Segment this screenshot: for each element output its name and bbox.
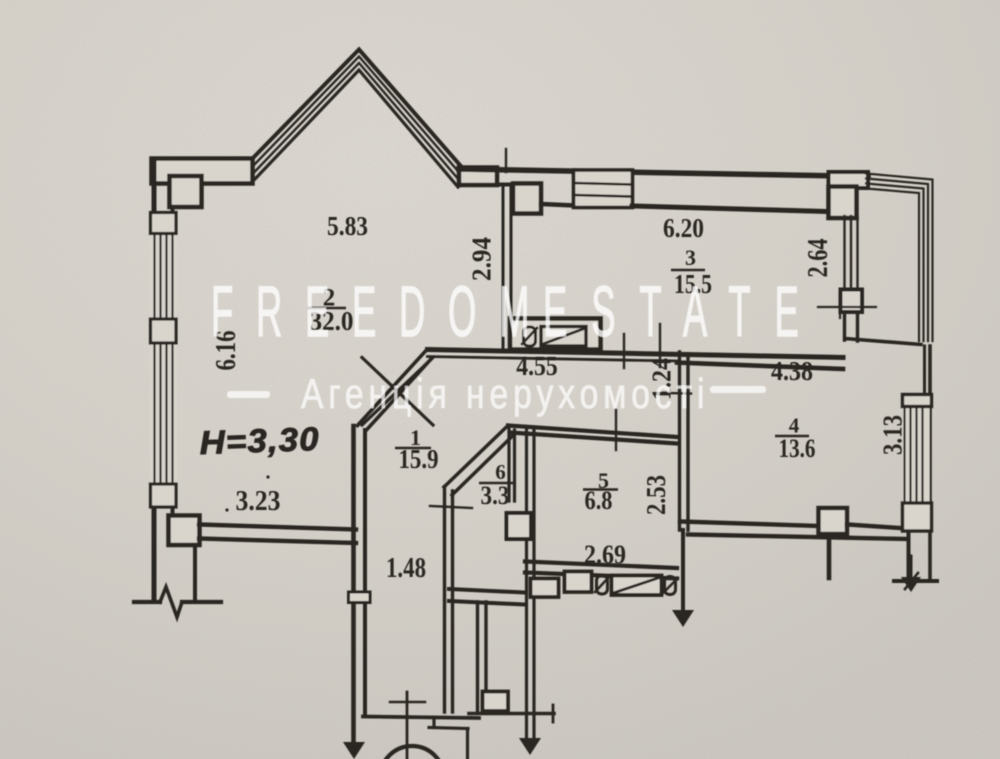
svg-text:ESTATE: ESTATE — [543, 272, 823, 351]
svg-text:2.69: 2.69 — [584, 540, 626, 570]
svg-text:Агенція нерухомості: Агенція нерухомості — [301, 372, 709, 418]
svg-text:H=3,30: H=3,30 — [199, 420, 320, 461]
svg-text:FREEDOM: FREEDOM — [211, 272, 552, 351]
svg-text:4.38: 4.38 — [771, 356, 813, 386]
svg-text:6.8: 6.8 — [585, 486, 613, 515]
svg-text:3.3: 3.3 — [481, 481, 510, 510]
svg-text:13.6: 13.6 — [779, 434, 816, 463]
svg-text:3.23: 3.23 — [236, 486, 281, 517]
svg-text:2.53: 2.53 — [641, 475, 671, 515]
svg-text:3.13: 3.13 — [878, 415, 908, 455]
svg-text:6.20: 6.20 — [663, 213, 704, 243]
svg-text:1.48: 1.48 — [386, 553, 426, 584]
svg-text:5.83: 5.83 — [327, 211, 368, 241]
svg-text:3: 3 — [685, 245, 696, 270]
svg-text:15.9: 15.9 — [399, 444, 439, 474]
